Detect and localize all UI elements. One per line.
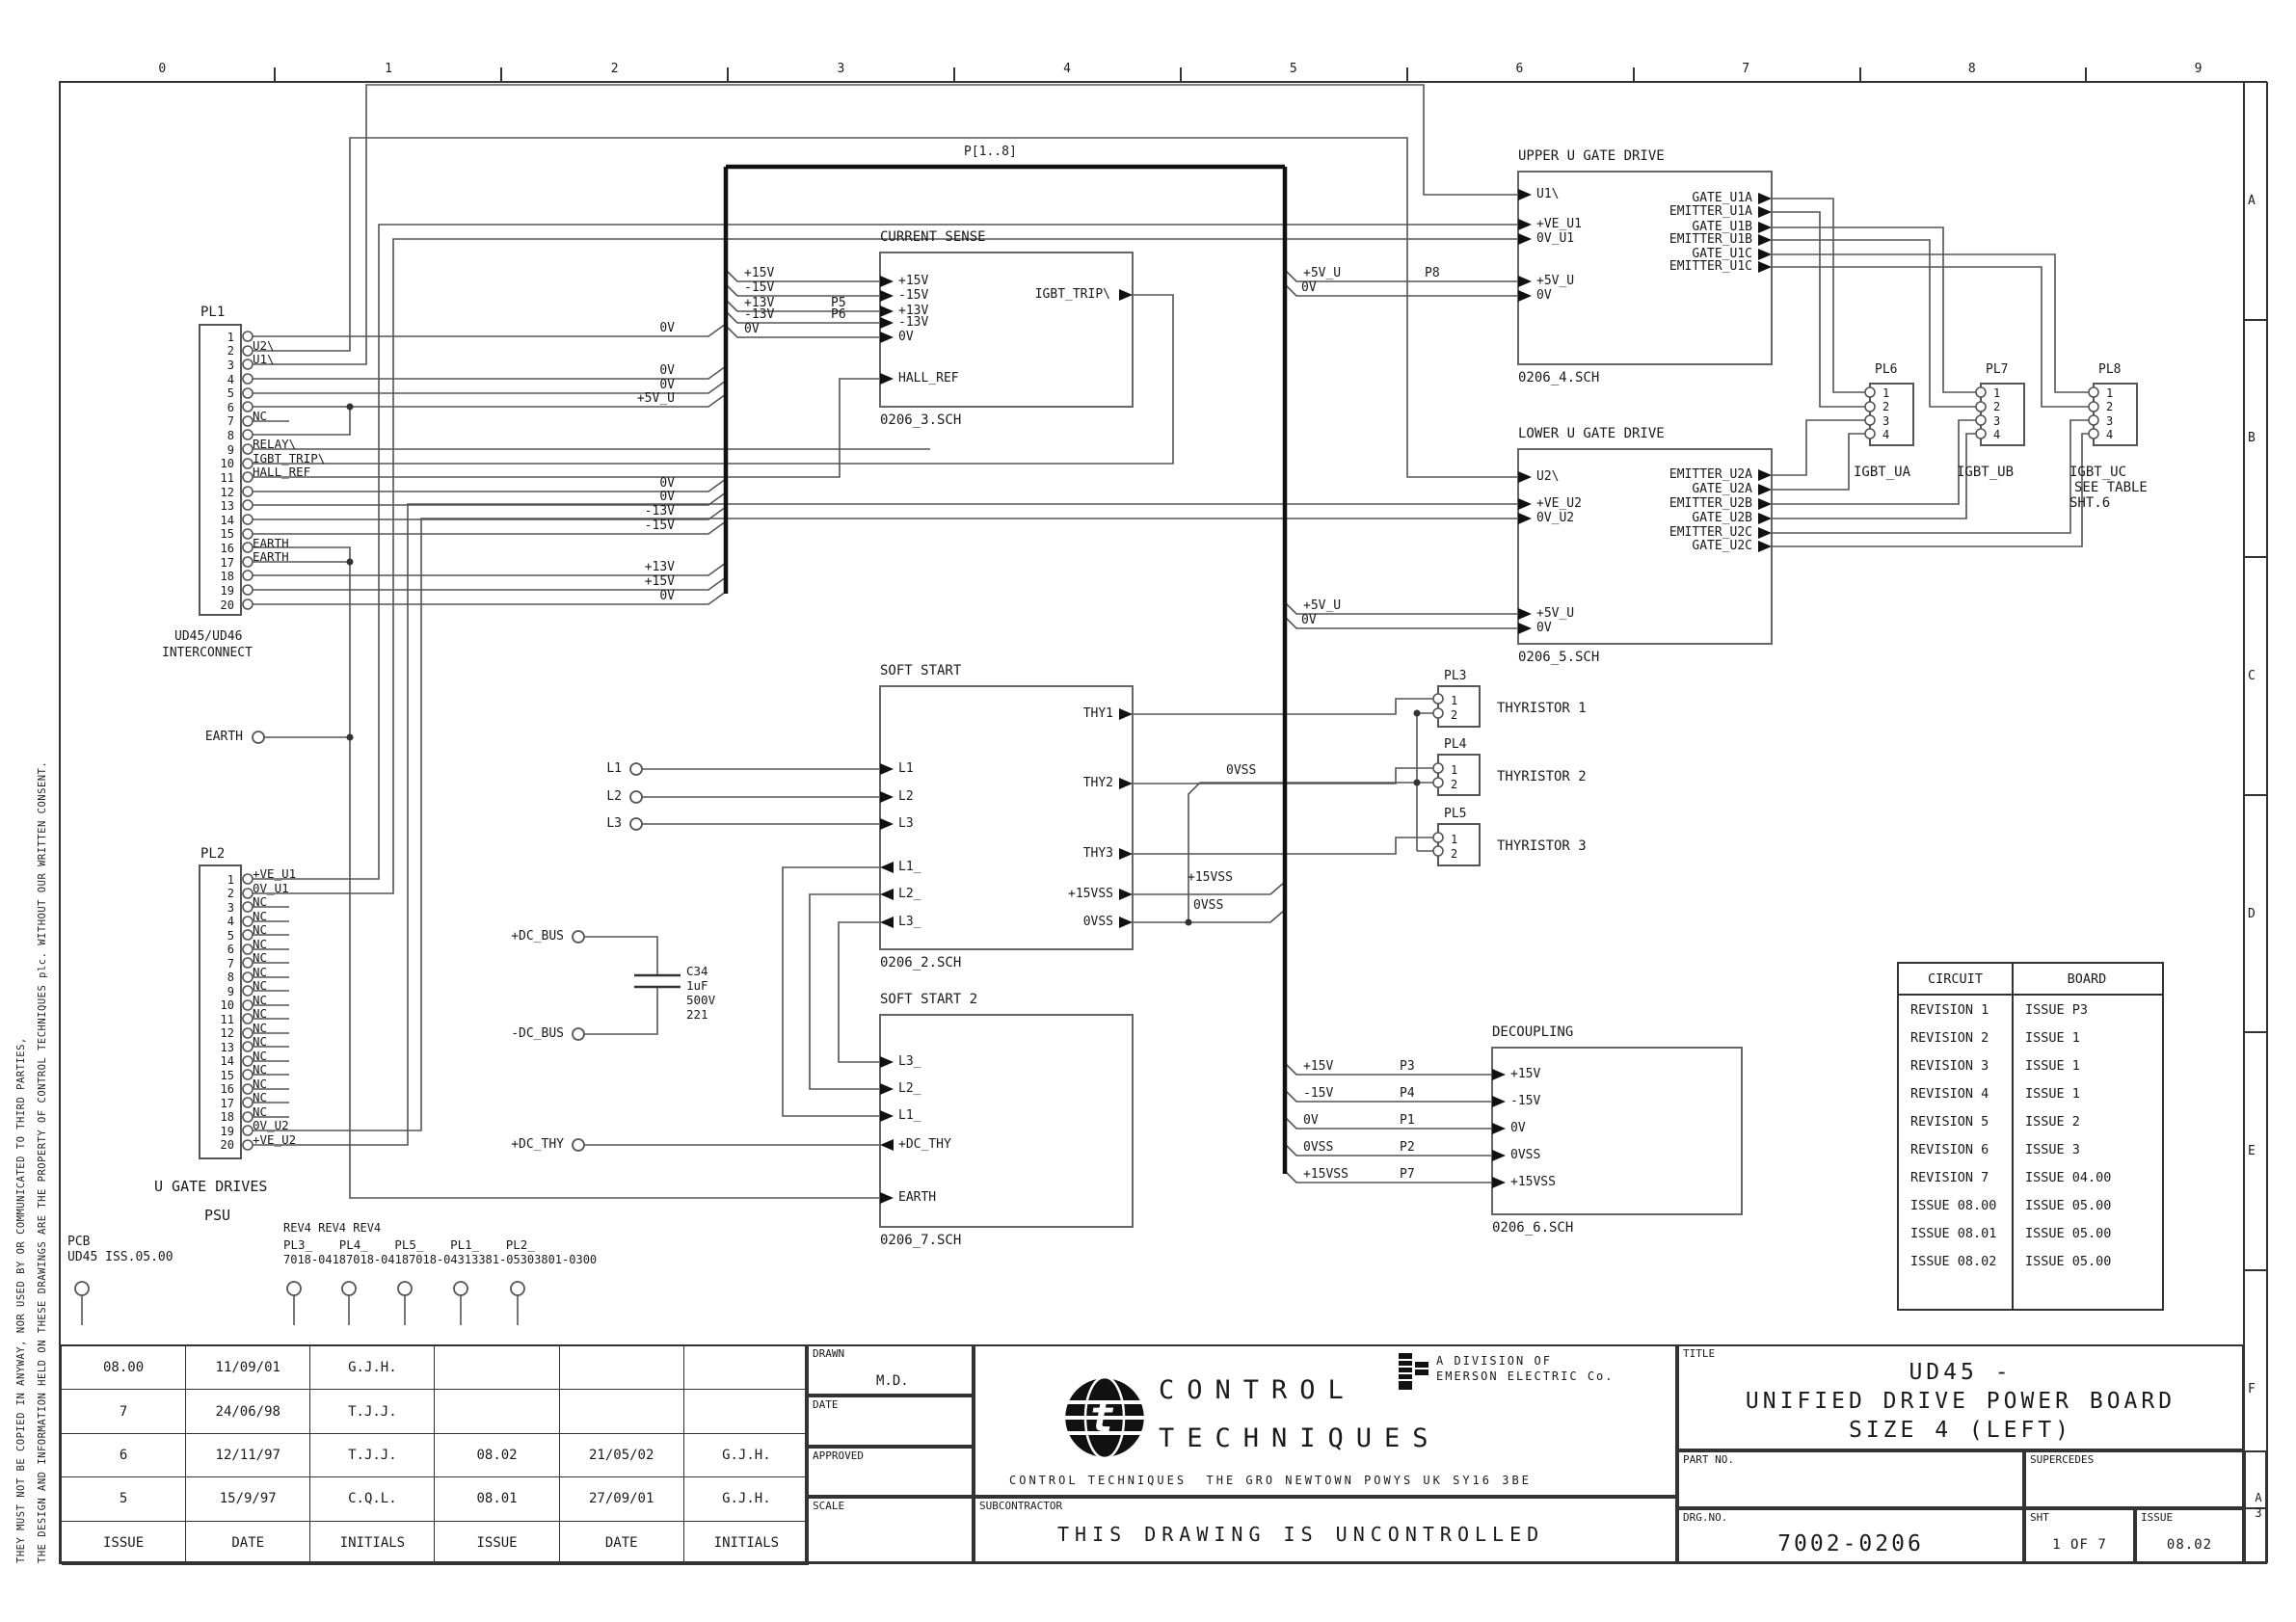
circuit-cell: REVISION 6	[1899, 1142, 2012, 1157]
pin-number: 18	[200, 1110, 234, 1125]
connector-pin-row: 2	[1438, 706, 1480, 721]
ruler-number: 9	[2085, 62, 2296, 76]
pin-label: HALL_REF	[898, 371, 959, 386]
board-cell: ISSUE 2	[2012, 1114, 2080, 1130]
pin-number: 16	[200, 542, 234, 556]
pin-number: 3	[200, 901, 234, 916]
drgno-value: 7002-0206	[1679, 1531, 2022, 1556]
division-line2: EMERSON ELECTRIC Co.	[1436, 1369, 1615, 1383]
circuit-cell: REVISION 5	[1899, 1114, 2012, 1130]
title-cell: TITLE UD45 - UNIFIED DRIVE POWER BOARD S…	[1677, 1344, 2244, 1450]
pin-label: L2_	[898, 1081, 921, 1096]
plug-name: PL2_	[506, 1237, 562, 1252]
pcb-note: PCB	[67, 1235, 90, 1249]
lower-gate-file: 0206_5.SCH	[1518, 650, 1599, 665]
schematic-sheet: 0123456789 ABCDEF THEY MUST NOT BE COPIE…	[0, 0, 2296, 1622]
sheet-size-cell: A3	[2244, 1450, 2267, 1563]
connector-pl7-label: PL7	[1986, 362, 2008, 377]
history-cell: 7	[62, 1390, 186, 1433]
dc-thy-label: +DC_THY	[511, 1137, 564, 1152]
connector-pin-row: 10NC	[200, 997, 241, 1012]
connector-pin-row: 6NC	[200, 942, 241, 956]
pcb-issue-note: UD45 ISS.05.00	[67, 1250, 174, 1264]
pin-signal-label: NC	[253, 966, 267, 978]
connector-pin-row: 8NC	[200, 970, 241, 984]
pin-label: 0V	[898, 330, 914, 344]
supercedes-cell: SUPERCEDES	[2024, 1450, 2244, 1508]
plug-name: PL1_	[450, 1237, 506, 1252]
connector-pin-row: 15NC	[200, 1068, 241, 1082]
pin-arrows	[880, 189, 1772, 1204]
pin-number: 18	[200, 570, 234, 584]
connector-pl6-pins: 1234	[1870, 386, 1913, 441]
table-row: ISSUE 08.02ISSUE 05.00	[1899, 1247, 2162, 1275]
plug-part-number: 3381-0530	[471, 1253, 534, 1266]
history-cell: T.J.J.	[310, 1390, 435, 1433]
pin-number: 3	[1981, 414, 2000, 428]
port-label-p1: P1	[1400, 1113, 1415, 1128]
connector-pl1-label: PL1	[200, 305, 225, 320]
drawing-title-line2: UNIFIED DRIVE POWER BOARD	[1679, 1389, 2242, 1414]
zone-letter: D	[2248, 795, 2256, 1033]
pin-label: +15VSS	[1068, 887, 1113, 901]
pin-number: 5	[200, 929, 234, 944]
table-row: ISSUE 08.00ISSUE 05.00	[1899, 1191, 2162, 1219]
history-cell: 08.01	[435, 1477, 559, 1521]
connector-pl6-label: PL6	[1875, 362, 1897, 377]
history-row: 612/11/97 T.J.J.08.02 21/05/02G.J.H.	[62, 1434, 805, 1477]
board-cell: ISSUE 1	[2012, 1058, 2080, 1074]
pin-number: 2	[1981, 400, 2000, 413]
decoupling-title: DECOUPLING	[1492, 1024, 1573, 1040]
issue-value: 08.02	[2137, 1537, 2242, 1553]
pl1-caption-line2: INTERCONNECT	[162, 646, 253, 660]
pin-number: 7	[200, 414, 234, 429]
connector-pin-row: 3U1\	[200, 358, 241, 372]
ruler-number: 3	[728, 62, 954, 76]
net-label: 0V	[659, 363, 675, 378]
pin-signal-label: 0V_U1	[253, 882, 289, 894]
history-cell: G.J.H.	[310, 1346, 435, 1390]
net-label: 0V	[1301, 280, 1317, 295]
scale-label: SCALE	[813, 1501, 844, 1512]
net-label: +15VSS	[1303, 1167, 1348, 1182]
psu-note: PSU	[204, 1208, 230, 1224]
cap-value-line: 1uF	[686, 978, 715, 993]
history-cell: 11/09/01	[186, 1346, 310, 1390]
pin-label: EMITTER_U1C	[1669, 259, 1752, 274]
pin-label: L2	[898, 789, 914, 804]
pin-number: 17	[200, 556, 234, 571]
history-cell: 15/9/97	[186, 1477, 310, 1521]
connector-pin-row: 10IGBT_TRIP\	[200, 456, 241, 470]
pin-number: 1	[2094, 386, 2113, 400]
company-address: CONTROL TECHNIQUES THE GRO NEWTOWN POWYS…	[1009, 1474, 1532, 1487]
connector-pin-row: 4	[200, 372, 241, 386]
connector-pin-row: 2U2\	[200, 343, 241, 358]
net-label: +15VSS	[1188, 870, 1233, 885]
circuit-board-table: CIRCUIT BOARD REVISION 1ISSUE P3REVISION…	[1897, 962, 2164, 1311]
connector-pin-row: 2	[1870, 399, 1913, 412]
history-cell	[560, 1346, 684, 1390]
ruler-number: 4	[954, 62, 1181, 76]
pin-number: 6	[200, 943, 234, 957]
connector-pin-row: 2	[1981, 399, 2024, 412]
net-label: 0V	[659, 476, 675, 491]
pin-label: 0VSS	[1510, 1148, 1540, 1162]
pin-number: 6	[200, 401, 234, 415]
pin-signal-label: EARTH	[253, 550, 289, 563]
scale-cell: SCALE	[807, 1497, 974, 1563]
plug-name: PL5_	[394, 1237, 450, 1252]
table-row: REVISION 1ISSUE P3	[1899, 996, 2162, 1024]
pin-label: 0V	[1536, 621, 1552, 635]
connector-pin-row: 13NC	[200, 1040, 241, 1054]
pin-signal-label: NC	[253, 1105, 267, 1118]
pin-label: GATE_U1A	[1692, 191, 1752, 205]
sheet-zone-letters: ABCDEF	[2248, 82, 2256, 1508]
pin-number: 1	[200, 331, 234, 345]
history-cell	[435, 1346, 559, 1390]
connector-pin-row: 1	[2094, 386, 2137, 399]
pin-label: -13V	[898, 315, 928, 330]
history-cell: 24/06/98	[186, 1390, 310, 1433]
disclaimer-outer: THEY MUST NOT BE COPIED IN ANYWAY, NOR U…	[15, 82, 27, 1563]
pin-number: 5	[200, 386, 234, 401]
bus-label: P[1..8]	[964, 145, 1017, 159]
history-cell: ISSUE	[62, 1522, 186, 1565]
pl1-caption-line1: UD45/UD46	[174, 629, 242, 644]
pin-label: EMITTER_U2C	[1669, 525, 1752, 540]
soft-start2-title: SOFT START 2	[880, 992, 977, 1007]
sheet-ruler: 0123456789	[49, 62, 2296, 76]
pin-label: L3_	[898, 1054, 921, 1069]
pin-signal-label: 0V_U2	[253, 1119, 289, 1131]
ruler-number: 7	[1633, 62, 1859, 76]
header-board: BOARD	[2012, 964, 2162, 994]
pin-label: +5V_U	[1536, 274, 1574, 288]
history-cell	[435, 1390, 559, 1433]
connector-pin-row: 9NC	[200, 984, 241, 998]
pin-number: 2	[1438, 847, 1457, 862]
control-techniques-globe-icon: t	[1060, 1373, 1149, 1462]
capacitor-c34-values: C341uF500V221	[686, 964, 715, 1022]
history-row: ISSUEDATE INITIALSISSUE DATEINITIALS	[62, 1522, 805, 1565]
table-header: CIRCUIT BOARD	[1899, 964, 2162, 996]
connector-pin-row: 8	[200, 428, 241, 442]
pin-label: EMITTER_U2A	[1669, 467, 1752, 482]
pin-number: 2	[200, 344, 234, 359]
connector-pin-row: 2	[1438, 845, 1480, 860]
division-line1: A DIVISION OF	[1436, 1354, 1552, 1368]
pin-signal-label: NC	[253, 410, 267, 422]
rev4-note: REV4 REV4 REV4	[283, 1221, 381, 1235]
title-label: TITLE	[1683, 1348, 1715, 1360]
disclaimer-inner: THE DESIGN AND INFORMATION HELD ON THESE…	[37, 82, 48, 1563]
net-label: 0VSS	[1303, 1140, 1333, 1155]
pin-number: 10	[200, 998, 234, 1013]
pin-number: 2	[200, 887, 234, 901]
plug-part-row: 7018-04187018-04187018-04313381-05303801…	[283, 1253, 597, 1266]
pin-signal-label: EARTH	[253, 537, 289, 549]
connector-pin-row: 1+VE_U1	[200, 872, 241, 887]
pin-label: 0VSS	[1083, 915, 1113, 929]
igbt-uc-note2: SHT.6	[2069, 495, 2110, 511]
connector-pin-row: 11NC	[200, 1012, 241, 1026]
table-row: ISSUE 08.01ISSUE 05.00	[1899, 1219, 2162, 1247]
partno-cell: PART NO.	[1677, 1450, 2024, 1508]
connector-pin-row: 19	[200, 583, 241, 598]
pin-number: 4	[200, 915, 234, 929]
pin-number: 2	[2094, 400, 2113, 413]
pin-signal-label: IGBT_TRIP\	[253, 452, 325, 465]
pin-label: L1_	[898, 860, 921, 874]
connector-pin-row: 18	[200, 569, 241, 583]
igbt-uc-note1: SEE TABLE	[2074, 480, 2148, 495]
connector-pin-row: 1	[1870, 386, 1913, 399]
net-label: 0V	[1303, 1113, 1319, 1128]
history-cell	[560, 1390, 684, 1433]
pin-number: 2	[1438, 778, 1457, 792]
connector-pl8-label: PL8	[2098, 362, 2121, 377]
connector-pl3-pins: 12	[1438, 692, 1480, 721]
thyristor1-caption: THYRISTOR 1	[1497, 701, 1587, 716]
pin-number: 15	[200, 1069, 234, 1083]
board-cell: ISSUE 1	[2012, 1086, 2080, 1102]
pin-number: 17	[200, 1097, 234, 1111]
pin-label: -15V	[898, 288, 928, 303]
zone-letter: E	[2248, 1032, 2256, 1270]
history-cell: ISSUE	[435, 1522, 559, 1565]
pin-signal-label: NC	[253, 1022, 267, 1034]
pin-number: 12	[200, 486, 234, 500]
history-cell: 6	[62, 1434, 186, 1477]
pin-number: 3	[2094, 414, 2113, 428]
net-label: -13V	[744, 307, 774, 322]
port-label-p7: P7	[1400, 1167, 1415, 1182]
current-sense-file: 0206_3.SCH	[880, 412, 961, 428]
board-cell: ISSUE 05.00	[2012, 1254, 2111, 1269]
connector-pin-row: 3NC	[200, 900, 241, 915]
plug-part-number: 7018-0418	[346, 1253, 409, 1266]
upper-gate-title: UPPER U GATE DRIVE	[1518, 148, 1665, 164]
pin-label: THY2	[1083, 776, 1113, 790]
emerson-icon	[1398, 1352, 1430, 1391]
circuit-cell: ISSUE 08.00	[1899, 1198, 2012, 1213]
pin-label: +15VSS	[1510, 1175, 1556, 1189]
soft-start2-file: 0206_7.SCH	[880, 1233, 961, 1248]
pin-number: 12	[200, 1026, 234, 1041]
connector-pin-row: 1	[1438, 831, 1480, 845]
connector-pl3-label: PL3	[1444, 669, 1466, 683]
connector-pin-row: 4	[2094, 427, 2137, 440]
drawn-label: DRAWN	[813, 1348, 844, 1360]
connector-pin-row: 2	[2094, 399, 2137, 412]
igbt-ub-caption: IGBT_UB	[1957, 465, 2014, 480]
issue-label: ISSUE	[2141, 1512, 2173, 1524]
cap-value-line: 221	[686, 1007, 715, 1022]
table-row: REVISION 3ISSUE 1	[1899, 1051, 2162, 1079]
table-row: REVISION 6ISSUE 3	[1899, 1135, 2162, 1163]
pin-signal-label: NC	[253, 1050, 267, 1062]
connector-pl7-pins: 1234	[1981, 386, 2024, 441]
circuit-cell: REVISION 7	[1899, 1170, 2012, 1185]
connector-pin-row: 12	[200, 485, 241, 499]
pin-label: EMITTER_U1B	[1669, 232, 1752, 247]
approved-cell: APPROVED	[807, 1447, 974, 1497]
pin-number: 4	[1870, 428, 1889, 441]
cap-value-line: C34	[686, 964, 715, 978]
l2-terminal-label: L2	[606, 789, 622, 804]
net-label: -15V	[1303, 1086, 1333, 1101]
connector-pin-row: 11HALL_REF	[200, 470, 241, 485]
history-cell: T.J.J.	[310, 1434, 435, 1477]
table-rows: REVISION 1ISSUE P3REVISION 2ISSUE 1REVIS…	[1899, 996, 2162, 1275]
circuit-cell: REVISION 2	[1899, 1030, 2012, 1046]
net-label: +15V	[645, 574, 675, 589]
subcontractor-cell: SUBCONTRACTOR THIS DRAWING IS UNCONTROLL…	[974, 1497, 1677, 1563]
pin-number: 19	[200, 1125, 234, 1139]
pin-number: 9	[200, 985, 234, 999]
soft-start-file: 0206_2.SCH	[880, 955, 961, 971]
pin-label: L1	[898, 761, 914, 776]
pin-number: 20	[200, 1138, 234, 1153]
connector-pin-row: 3	[1870, 413, 1913, 427]
board-cell: ISSUE 04.00	[2012, 1170, 2111, 1185]
port-label-p6: P6	[831, 307, 846, 322]
pin-label: 0V_U2	[1536, 511, 1574, 525]
pin-number: 20	[200, 598, 234, 613]
pin-number: 3	[200, 359, 234, 373]
net-label: +13V	[645, 560, 675, 574]
board-cell: ISSUE 05.00	[2012, 1198, 2111, 1213]
pin-label: -15V	[1510, 1094, 1540, 1108]
connector-pin-row: 13	[200, 498, 241, 513]
connector-pin-row: 20+VE_U2	[200, 1137, 241, 1152]
board-cell: ISSUE 3	[2012, 1142, 2080, 1157]
soft-start-title: SOFT START	[880, 663, 961, 678]
connector-pin-row: 14	[200, 513, 241, 527]
pin-number: 4	[1981, 428, 2000, 441]
ruler-number: 6	[1406, 62, 1633, 76]
pin-label: 0V	[1510, 1121, 1526, 1135]
sheet-value: 1 OF 7	[2026, 1537, 2133, 1553]
pin-label: 0V_U1	[1536, 231, 1574, 246]
board-cell: ISSUE 1	[2012, 1030, 2080, 1046]
pin-label: +5V_U	[1536, 606, 1574, 621]
pin-label: L3	[898, 816, 914, 831]
net-label: +5V_U	[1303, 266, 1341, 280]
connector-pin-row: 4	[1981, 427, 2024, 440]
table-divider	[2012, 964, 2014, 1309]
net-label: 0VSS	[1193, 898, 1223, 913]
connector-pin-row: 1	[1438, 761, 1480, 776]
pin-signal-label: NC	[253, 1063, 267, 1076]
l3-terminal-label: L3	[606, 816, 622, 831]
pin-number: 7	[200, 957, 234, 971]
upper-gate-file: 0206_4.SCH	[1518, 370, 1599, 386]
approved-label: APPROVED	[813, 1450, 864, 1462]
pin-label: GATE_U2C	[1692, 539, 1752, 553]
net-label: 0V	[659, 589, 675, 603]
net-label: -15V	[645, 519, 675, 533]
pin-number: 19	[200, 584, 234, 598]
net-label: -15V	[744, 280, 774, 295]
sheet-frame	[60, 67, 2267, 1563]
pin-label: GATE_U2A	[1692, 482, 1752, 496]
date-label: DATE	[813, 1399, 839, 1411]
connector-pin-row: 4NC	[200, 914, 241, 928]
connector-pl5-pins: 12	[1438, 831, 1480, 860]
pin-label: IGBT_TRIP\	[1035, 287, 1110, 302]
drawing-title-line3: SIZE 4 (LEFT)	[1679, 1418, 2242, 1443]
history-row: 724/06/98 T.J.J.	[62, 1390, 805, 1433]
net-label: 0V	[1301, 613, 1317, 627]
port-label-p4: P4	[1400, 1086, 1415, 1101]
board-cell: ISSUE 05.00	[2012, 1226, 2111, 1241]
net-label: -13V	[645, 504, 675, 519]
history-cell: 08.00	[62, 1346, 186, 1390]
pin-label: +15V	[898, 274, 928, 288]
drgno-label: DRG.NO.	[1683, 1512, 1727, 1524]
subcontractor-label: SUBCONTRACTOR	[979, 1501, 1062, 1512]
igbt-ua-caption: IGBT_UA	[1854, 465, 1910, 480]
drawn-value: M.D.	[876, 1373, 909, 1389]
lower-gate-title: LOWER U GATE DRIVE	[1518, 426, 1665, 441]
circuit-cell: REVISION 4	[1899, 1086, 2012, 1102]
connector-pin-row: 16NC	[200, 1081, 241, 1096]
connector-pl2-label: PL2	[200, 846, 225, 862]
connector-pin-row: 6	[200, 400, 241, 414]
table-row: REVISION 5ISSUE 2	[1899, 1107, 2162, 1135]
earth-terminal-label: EARTH	[205, 730, 243, 744]
connector-pin-row: 1	[1981, 386, 2024, 399]
connector-pin-row: 20	[200, 598, 241, 612]
connector-pin-row: 17NC	[200, 1096, 241, 1110]
thyristor3-caption: THYRISTOR 3	[1497, 838, 1587, 854]
pin-signal-label: NC	[253, 1007, 267, 1020]
plug-part-number: 3801-0300	[534, 1253, 597, 1266]
plug-part-number: 7018-0418	[283, 1253, 346, 1266]
pin-signal-label: U2\	[253, 339, 275, 352]
pin-number: 4	[200, 373, 234, 387]
history-cell: 27/09/01	[560, 1477, 684, 1521]
connector-pin-row: 7NC	[200, 413, 241, 428]
circuit-cell: REVISION 3	[1899, 1058, 2012, 1074]
uncontrolled-note: THIS DRAWING IS UNCONTROLLED	[1057, 1528, 1544, 1542]
history-cell: C.Q.L.	[310, 1477, 435, 1521]
pin-label: THY3	[1083, 846, 1113, 861]
dc-bus-neg-label: -DC_BUS	[511, 1026, 564, 1041]
svg-text:t: t	[1089, 1393, 1115, 1442]
history-row: 515/9/97 C.Q.L.08.01 27/09/01G.J.H.	[62, 1477, 805, 1521]
pin-label: +15V	[1510, 1067, 1540, 1081]
pin-signal-label: RELAY\	[253, 438, 296, 450]
connector-pin-row: 9RELAY\	[200, 442, 241, 457]
plug-part-number: 7018-0431	[409, 1253, 471, 1266]
circuit-cell: ISSUE 08.02	[1899, 1254, 2012, 1269]
ruler-number: 5	[1180, 62, 1406, 76]
pin-number: 11	[200, 471, 234, 486]
pin-label: L2_	[898, 887, 921, 901]
history-cell: 21/05/02	[560, 1434, 684, 1477]
pin-number: 14	[200, 514, 234, 528]
logo-word-techniques: TECHNIQUES	[1159, 1431, 1441, 1446]
pin-signal-label: NC	[253, 938, 267, 950]
pin-number: 15	[200, 527, 234, 542]
current-sense-title: CURRENT SENSE	[880, 229, 986, 245]
connector-pin-row: 5	[200, 386, 241, 400]
